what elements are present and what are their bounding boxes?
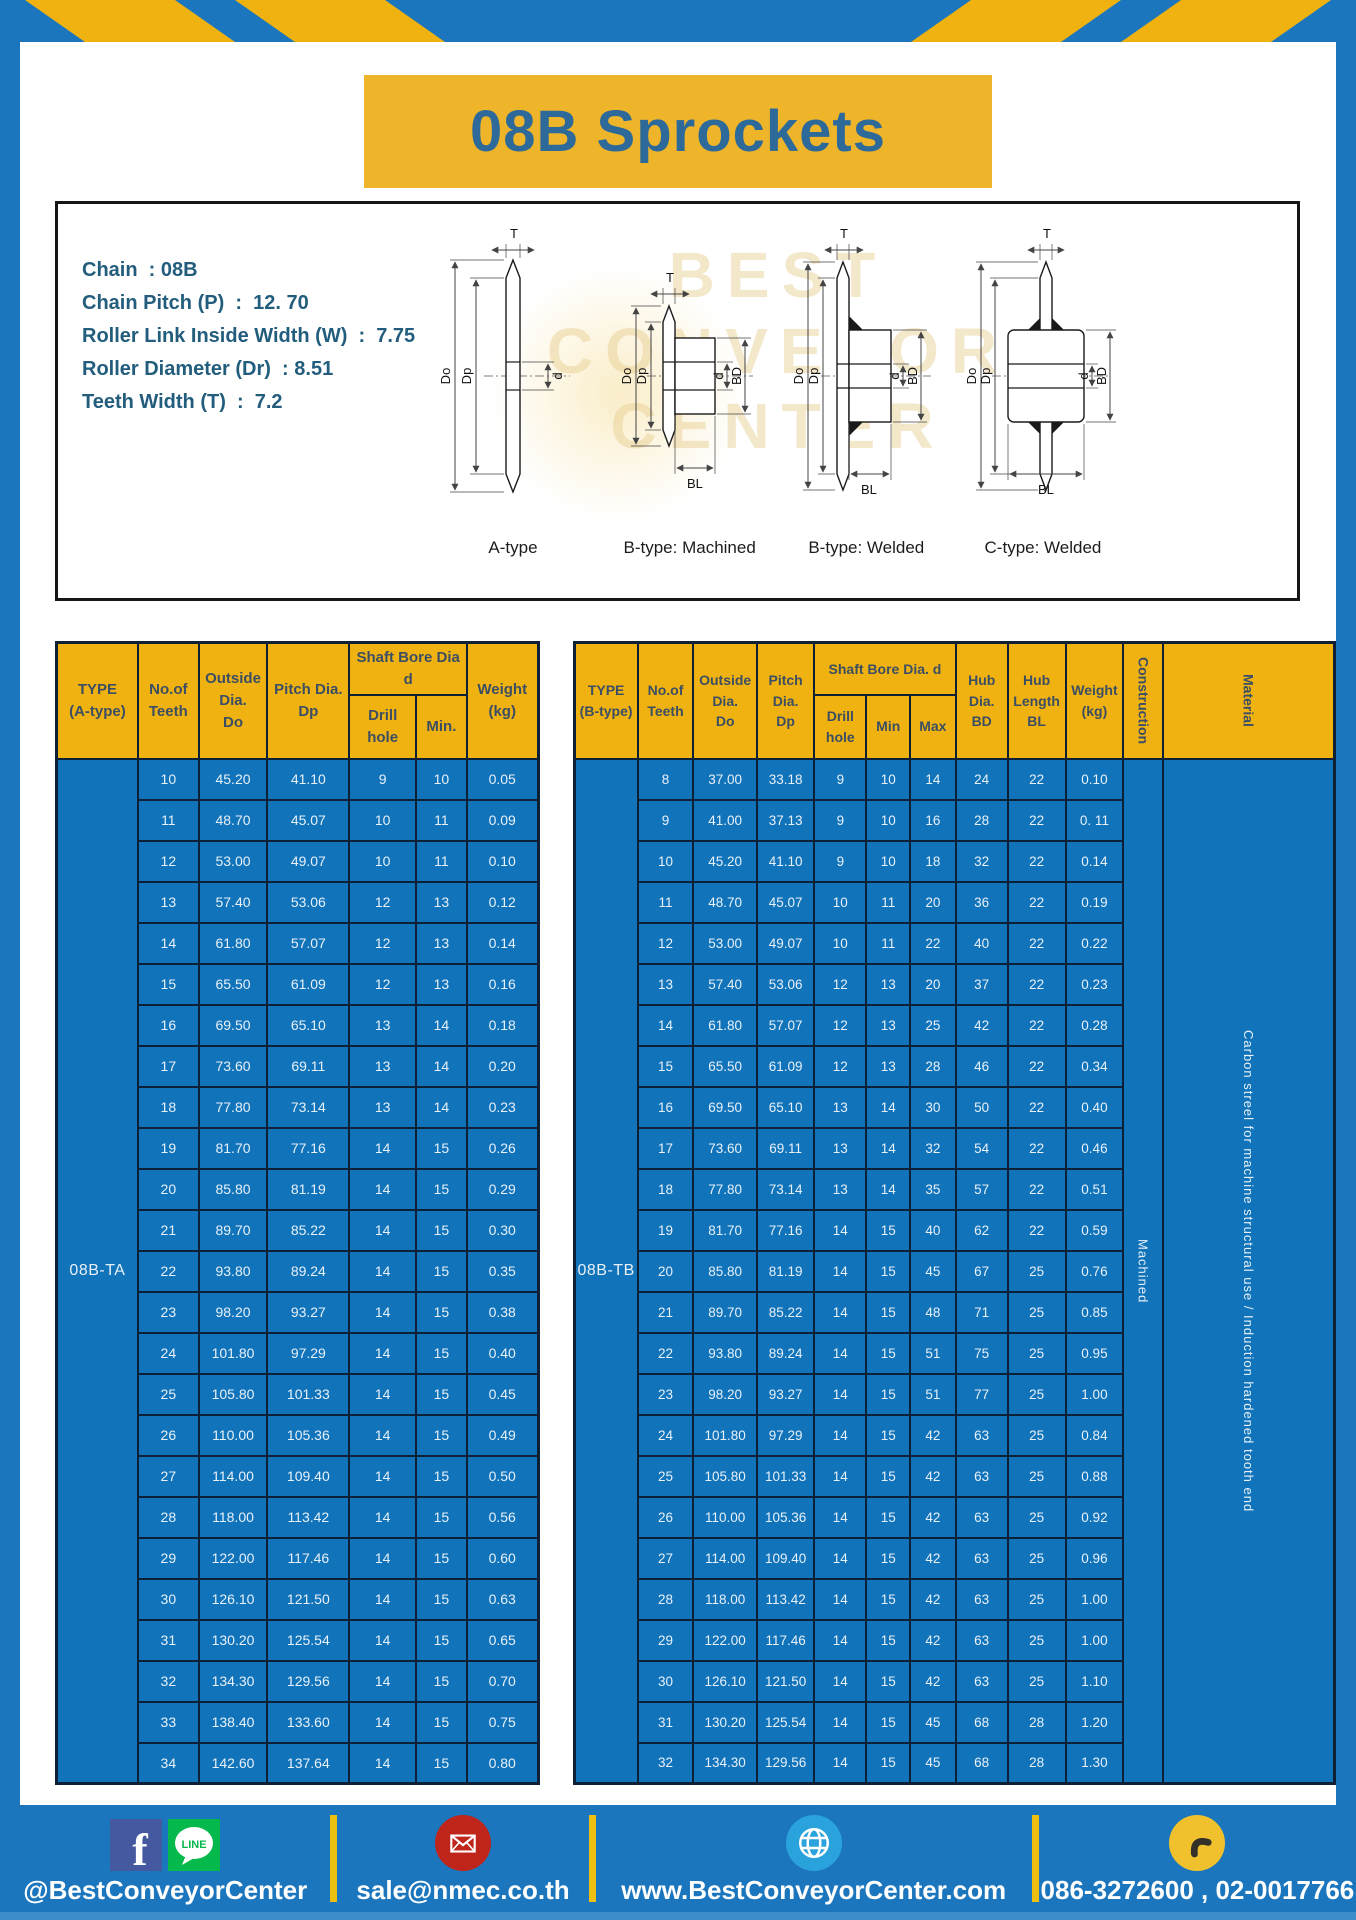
table-cell: 14 xyxy=(138,923,199,964)
col-header-shaft-bore: Shaft Bore Dia d xyxy=(349,643,466,695)
table-cell: 61.80 xyxy=(199,923,267,964)
table-cell: 37 xyxy=(956,964,1008,1005)
footer-social-handle: @BestConveyorCenter xyxy=(23,1875,307,1906)
spec-chain: Chain : 08B xyxy=(82,254,415,287)
table-cell: 25 xyxy=(1008,1374,1066,1415)
table-cell: 0.18 xyxy=(467,1005,538,1046)
table-cell: 10 xyxy=(814,882,866,923)
table-cell: 23 xyxy=(638,1374,694,1415)
table-cell: 13 xyxy=(416,882,467,923)
table-cell: 15 xyxy=(866,1579,910,1620)
table-cell: 37.13 xyxy=(757,800,814,841)
table-cell: 77.16 xyxy=(757,1210,814,1251)
table-cell: 45 xyxy=(910,1702,956,1743)
table-cell: 25 xyxy=(1008,1497,1066,1538)
table-cell: 19 xyxy=(638,1210,694,1251)
table-cell: 12 xyxy=(638,923,694,964)
table-cell: 81.70 xyxy=(693,1210,757,1251)
table-cell: 62 xyxy=(956,1210,1008,1251)
table-cell: 0.50 xyxy=(467,1456,538,1497)
table-cell: 0.40 xyxy=(467,1333,538,1374)
table-cell: 89.24 xyxy=(267,1251,349,1292)
table-cell: 10 xyxy=(866,841,910,882)
table-cell: 69.50 xyxy=(199,1005,267,1046)
table-cell: 42 xyxy=(910,1415,956,1456)
table-cell: 29 xyxy=(138,1538,199,1579)
a-type-table: TYPE (A-type) No.of Teeth Outside Dia. D… xyxy=(55,641,540,1785)
table-cell: 69.11 xyxy=(267,1046,349,1087)
table-cell: 0.23 xyxy=(467,1087,538,1128)
table-cell: 0.29 xyxy=(467,1169,538,1210)
col-header-outside-dia: Outside Dia. Do xyxy=(693,643,757,759)
table-cell: 118.00 xyxy=(693,1579,757,1620)
spec-roller-diameter: Roller Diameter (Dr) : 8.51 xyxy=(82,353,415,386)
table-cell: 14 xyxy=(349,1128,415,1169)
table-cell: 53.06 xyxy=(757,964,814,1005)
table-cell: 0.85 xyxy=(1066,1292,1124,1333)
table-cell: 101.33 xyxy=(267,1374,349,1415)
table-cell: 22 xyxy=(1008,1005,1066,1046)
dim-label: T xyxy=(840,226,848,241)
table-cell: 130.20 xyxy=(693,1702,757,1743)
table-cell: 13 xyxy=(349,1046,415,1087)
dim-label: Do xyxy=(964,368,979,385)
table-cell: 0.28 xyxy=(1066,1005,1124,1046)
table-cell: 81.70 xyxy=(199,1128,267,1169)
table-cell: 93.80 xyxy=(693,1333,757,1374)
table-cell: 22 xyxy=(1008,1169,1066,1210)
table-cell: 0.76 xyxy=(1066,1251,1124,1292)
table-cell: 109.40 xyxy=(757,1538,814,1579)
footer: f LINE @BestConveyorCenter xyxy=(0,1805,1356,1912)
table-cell: 69.11 xyxy=(757,1128,814,1169)
col-header-weight: Weight (kg) xyxy=(467,643,538,759)
table-cell: 85.22 xyxy=(267,1210,349,1251)
table-cell: 14 xyxy=(416,1087,467,1128)
table-cell: 12 xyxy=(814,1005,866,1046)
table-cell: 122.00 xyxy=(693,1620,757,1661)
table-cell: 49.07 xyxy=(757,923,814,964)
table-cell: 14 xyxy=(814,1292,866,1333)
table-cell: 16 xyxy=(138,1005,199,1046)
col-header-teeth: No.of Teeth xyxy=(138,643,199,759)
table-cell: 61.80 xyxy=(693,1005,757,1046)
table-cell: 57.07 xyxy=(757,1005,814,1046)
table-cell: 14 xyxy=(866,1128,910,1169)
dim-label: Do xyxy=(438,368,453,385)
table-cell: 33.18 xyxy=(757,759,814,800)
table-cell: 0.22 xyxy=(1066,923,1124,964)
table-cell: 16 xyxy=(910,800,956,841)
table-cell: 15 xyxy=(416,1538,467,1579)
table-cell: 15 xyxy=(416,1661,467,1702)
b-type-table: TYPE (B-type) No.of Teeth Outside Dia. D… xyxy=(573,641,1337,1785)
table-cell: 0.20 xyxy=(467,1046,538,1087)
table-cell: 42 xyxy=(910,1620,956,1661)
table-cell: 25 xyxy=(1008,1579,1066,1620)
table-cell: 0.56 xyxy=(467,1497,538,1538)
table-cell: 85.22 xyxy=(757,1292,814,1333)
table-cell: 25 xyxy=(1008,1620,1066,1661)
table-cell: 15 xyxy=(866,1333,910,1374)
globe-icon xyxy=(786,1815,842,1871)
table-cell: 0.51 xyxy=(1066,1169,1124,1210)
table-cell: 81.19 xyxy=(757,1251,814,1292)
table-cell: 14 xyxy=(349,1620,415,1661)
table-cell: 73.60 xyxy=(693,1128,757,1169)
table-cell: 14 xyxy=(814,1456,866,1497)
dim-label: d xyxy=(711,372,726,379)
table-cell: 9 xyxy=(349,759,415,800)
col-header-hub-length: Hub Length BL xyxy=(1008,643,1066,759)
table-cell: 32 xyxy=(956,841,1008,882)
table-cell: 14 xyxy=(814,1333,866,1374)
table-cell: 12 xyxy=(349,882,415,923)
table-cell: 22 xyxy=(138,1251,199,1292)
table-cell: 71 xyxy=(956,1292,1008,1333)
table-cell: 45.20 xyxy=(199,759,267,800)
top-decorative-band xyxy=(0,0,1356,42)
table-cell: 63 xyxy=(956,1661,1008,1702)
table-cell: 12 xyxy=(814,1046,866,1087)
table-cell: 65.10 xyxy=(757,1087,814,1128)
table-cell: 15 xyxy=(866,1538,910,1579)
table-cell: 14 xyxy=(349,1292,415,1333)
table-cell: 23 xyxy=(138,1292,199,1333)
table-cell: 113.42 xyxy=(757,1579,814,1620)
table-cell: 22 xyxy=(1008,800,1066,841)
table-cell: 13 xyxy=(349,1005,415,1046)
table-cell: 0.60 xyxy=(467,1538,538,1579)
table-cell: 14 xyxy=(866,1169,910,1210)
table-cell: 65.50 xyxy=(199,964,267,1005)
table-cell: 14 xyxy=(814,1620,866,1661)
col-header-min: Min xyxy=(866,695,910,759)
dim-label: BL xyxy=(687,476,703,491)
table-cell: 118.00 xyxy=(199,1497,267,1538)
table-cell: 1.10 xyxy=(1066,1661,1124,1702)
dim-label: d xyxy=(1076,372,1091,379)
table-cell: 81.19 xyxy=(267,1169,349,1210)
table-cell: 0.30 xyxy=(467,1210,538,1251)
table-cell: 12 xyxy=(349,964,415,1005)
table-cell: 85.80 xyxy=(693,1251,757,1292)
table-cell: 15 xyxy=(866,1497,910,1538)
table-cell: 45.20 xyxy=(693,841,757,882)
table-cell: 14 xyxy=(814,1538,866,1579)
dim-label: Dp xyxy=(459,368,474,385)
footer-social: f LINE @BestConveyorCenter xyxy=(0,1805,330,1912)
table-cell: 40 xyxy=(910,1210,956,1251)
table-cell: 15 xyxy=(866,1702,910,1743)
table-cell: 9 xyxy=(638,800,694,841)
col-header-type: TYPE (B-type) xyxy=(574,643,638,759)
table-cell: 126.10 xyxy=(693,1661,757,1702)
table-cell: 53.00 xyxy=(693,923,757,964)
table-cell: 121.50 xyxy=(757,1661,814,1702)
table-cell: 0.38 xyxy=(467,1292,538,1333)
table-cell: 57 xyxy=(956,1169,1008,1210)
table-cell: 0.75 xyxy=(467,1702,538,1743)
table-cell: 26 xyxy=(138,1415,199,1456)
table-cell: 110.00 xyxy=(199,1415,267,1456)
table-cell: 14 xyxy=(349,1456,415,1497)
table-cell: 36 xyxy=(956,882,1008,923)
table-cell: 21 xyxy=(638,1292,694,1333)
footer-email-address: sale@nmec.co.th xyxy=(356,1875,569,1906)
table-cell: 15 xyxy=(416,1620,467,1661)
table-cell: 73.14 xyxy=(267,1087,349,1128)
table-cell: 0.65 xyxy=(467,1620,538,1661)
table-cell: 63 xyxy=(956,1538,1008,1579)
table-cell: 18 xyxy=(910,841,956,882)
col-header-type: TYPE (A-type) xyxy=(57,643,138,759)
table-cell: 14 xyxy=(638,1005,694,1046)
table-cell: 114.00 xyxy=(693,1538,757,1579)
table-cell: 42 xyxy=(910,1661,956,1702)
table-cell: 42 xyxy=(956,1005,1008,1046)
footer-phone-numbers: 086-3272600 , 02-0017766 xyxy=(1041,1875,1355,1906)
table-cell: 109.40 xyxy=(267,1456,349,1497)
table-cell: 14 xyxy=(349,1497,415,1538)
dim-label: BD xyxy=(1094,367,1109,385)
table-cell: 25 xyxy=(1008,1661,1066,1702)
table-cell: 93.27 xyxy=(757,1374,814,1415)
table-cell: 97.29 xyxy=(267,1333,349,1374)
page-body: 08B Sprockets BEST CONVEYOR CENTER Chain… xyxy=(20,42,1336,1805)
table-cell: 13 xyxy=(866,964,910,1005)
dim-label: Dp xyxy=(806,368,821,385)
table-cell: 63 xyxy=(956,1579,1008,1620)
table-cell: 0.88 xyxy=(1066,1456,1124,1497)
chain-specs: Chain : 08B Chain Pitch (P) : 12. 70 Rol… xyxy=(82,254,415,419)
dim-label: T xyxy=(1043,226,1051,241)
table-cell: 97.29 xyxy=(757,1415,814,1456)
table-cell: 0.92 xyxy=(1066,1497,1124,1538)
table-cell: 14 xyxy=(349,1743,415,1784)
table-cell: 19 xyxy=(138,1128,199,1169)
table-cell: 15 xyxy=(866,1661,910,1702)
table-cell: 13 xyxy=(416,923,467,964)
table-cell: 31 xyxy=(138,1620,199,1661)
dim-label: T xyxy=(666,270,674,285)
a-type-diagram: T Do Dp d A-type xyxy=(428,218,598,558)
table-cell: 9 xyxy=(814,800,866,841)
footer-divider xyxy=(589,1815,596,1902)
table-cell: 0.10 xyxy=(1066,759,1124,800)
table-cell: 46 xyxy=(956,1046,1008,1087)
table-cell: 28 xyxy=(638,1579,694,1620)
table-cell: 77.80 xyxy=(693,1169,757,1210)
table-cell: 137.64 xyxy=(267,1743,349,1784)
table-cell: 15 xyxy=(866,1456,910,1497)
table-cell: 13 xyxy=(814,1087,866,1128)
table-cell: 25 xyxy=(638,1456,694,1497)
table-cell: 1.00 xyxy=(1066,1620,1124,1661)
yellow-stripe xyxy=(1112,0,1339,42)
table-cell: 45.07 xyxy=(757,882,814,923)
table-cell: 101.80 xyxy=(693,1415,757,1456)
table-cell: 15 xyxy=(416,1292,467,1333)
table-cell: 22 xyxy=(1008,964,1066,1005)
dim-label: BD xyxy=(905,367,920,385)
table-cell: 105.36 xyxy=(757,1497,814,1538)
table-cell: 61.09 xyxy=(757,1046,814,1087)
table-cell: 22 xyxy=(1008,1087,1066,1128)
table-cell: 77.16 xyxy=(267,1128,349,1169)
dim-label: BD xyxy=(729,367,744,385)
type-cell: 08B-TB xyxy=(574,759,638,1784)
table-cell: 61.09 xyxy=(267,964,349,1005)
table-cell: 34 xyxy=(138,1743,199,1784)
col-header-min: Min. xyxy=(416,695,467,759)
table-cell: 89.24 xyxy=(757,1333,814,1374)
diagram-caption: C-type: Welded xyxy=(985,538,1102,558)
b-type-machined-diagram: T Do Dp d BD BL B-type: xyxy=(605,218,775,558)
table-cell: 15 xyxy=(866,1374,910,1415)
dim-label: Dp xyxy=(634,368,649,385)
table-cell: 15 xyxy=(416,1374,467,1415)
table-cell: 14 xyxy=(349,1210,415,1251)
table-cell: 101.33 xyxy=(757,1456,814,1497)
table-cell: 14 xyxy=(814,1743,866,1784)
table-cell: 30 xyxy=(138,1579,199,1620)
table-cell: 40 xyxy=(956,923,1008,964)
table-cell: 29 xyxy=(638,1620,694,1661)
table-cell: 0.34 xyxy=(1066,1046,1124,1087)
table-cell: 15 xyxy=(866,1743,910,1784)
table-cell: 89.70 xyxy=(199,1210,267,1251)
table-cell: 22 xyxy=(1008,1210,1066,1251)
table-cell: 73.60 xyxy=(199,1046,267,1087)
table-cell: 14 xyxy=(349,1538,415,1579)
table-cell: 105.80 xyxy=(693,1456,757,1497)
col-header-outside-dia: Outside Dia. Do xyxy=(199,643,267,759)
bottom-strip xyxy=(0,1912,1356,1920)
table-cell: 22 xyxy=(1008,923,1066,964)
line-icon: LINE xyxy=(168,1819,220,1871)
table-cell: 0.59 xyxy=(1066,1210,1124,1251)
col-header-material: Material xyxy=(1163,643,1335,759)
table-cell: 129.56 xyxy=(267,1661,349,1702)
table-cell: 0.40 xyxy=(1066,1087,1124,1128)
table-cell: 32 xyxy=(638,1743,694,1784)
table-cell: 18 xyxy=(138,1087,199,1128)
col-header-pitch-dia: Pitch Dia. Dp xyxy=(267,643,349,759)
table-cell: 15 xyxy=(416,1251,467,1292)
table-cell: 125.54 xyxy=(267,1620,349,1661)
table-cell: 117.46 xyxy=(757,1620,814,1661)
table-cell: 13 xyxy=(349,1087,415,1128)
table-cell: 14 xyxy=(814,1415,866,1456)
table-cell: 30 xyxy=(638,1661,694,1702)
table-cell: 51 xyxy=(910,1374,956,1415)
table-cell: 15 xyxy=(416,1579,467,1620)
table-row: 08B-TB837.0033.189101424220.10MachinedCa… xyxy=(574,759,1335,800)
table-cell: 14 xyxy=(349,1333,415,1374)
table-cell: 15 xyxy=(638,1046,694,1087)
table-cell: 10 xyxy=(638,841,694,882)
table-cell: 15 xyxy=(866,1292,910,1333)
table-cell: 0.05 xyxy=(467,759,538,800)
table-cell: 114.00 xyxy=(199,1456,267,1497)
table-cell: 133.60 xyxy=(267,1702,349,1743)
table-cell: 25 xyxy=(1008,1292,1066,1333)
table-cell: 1.00 xyxy=(1066,1374,1124,1415)
table-cell: 0.26 xyxy=(467,1128,538,1169)
table-cell: 9 xyxy=(814,759,866,800)
col-header-drill-hole: Drill hole xyxy=(349,695,415,759)
table-cell: 14 xyxy=(349,1251,415,1292)
spec-roller-link-width: Roller Link Inside Width (W) : 7.75 xyxy=(82,320,415,353)
table-cell: 15 xyxy=(866,1210,910,1251)
table-cell: 24 xyxy=(138,1333,199,1374)
table-cell: 11 xyxy=(866,882,910,923)
table-cell: 10 xyxy=(138,759,199,800)
dim-label: d xyxy=(887,372,902,379)
table-cell: 25 xyxy=(138,1374,199,1415)
construction-cell: Machined xyxy=(1123,759,1163,1784)
col-header-teeth: No.of Teeth xyxy=(638,643,694,759)
col-header-drill-hole: Drill hole xyxy=(814,695,866,759)
table-cell: 0.46 xyxy=(1066,1128,1124,1169)
table-cell: 105.80 xyxy=(199,1374,267,1415)
table-cell: 25 xyxy=(1008,1333,1066,1374)
facebook-icon: f xyxy=(110,1819,162,1871)
table-cell: 15 xyxy=(138,964,199,1005)
table-cell: 63 xyxy=(956,1620,1008,1661)
table-cell: 28 xyxy=(956,800,1008,841)
table-cell: 68 xyxy=(956,1743,1008,1784)
dim-label: BL xyxy=(1038,482,1054,497)
table-cell: 14 xyxy=(814,1210,866,1251)
footer-phone: 086-3272600 , 02-0017766 xyxy=(1039,1805,1356,1912)
footer-divider xyxy=(330,1815,337,1902)
table-cell: 13 xyxy=(814,1169,866,1210)
col-header-shaft-bore: Shaft Bore Dia. d xyxy=(814,643,956,695)
table-cell: 14 xyxy=(416,1046,467,1087)
table-cell: 0. 11 xyxy=(1066,800,1124,841)
table-cell: 15 xyxy=(416,1456,467,1497)
table-cell: 0.23 xyxy=(1066,964,1124,1005)
table-cell: 110.00 xyxy=(693,1497,757,1538)
footer-email: sale@nmec.co.th xyxy=(337,1805,588,1912)
table-cell: 10 xyxy=(349,800,415,841)
table-cell: 77.80 xyxy=(199,1087,267,1128)
yellow-stripe xyxy=(902,0,1129,42)
table-cell: 45 xyxy=(910,1743,956,1784)
table-cell: 12 xyxy=(349,923,415,964)
table-cell: 53.00 xyxy=(199,841,267,882)
table-cell: 134.30 xyxy=(199,1661,267,1702)
table-cell: 11 xyxy=(416,800,467,841)
table-cell: 31 xyxy=(638,1702,694,1743)
table-cell: 48.70 xyxy=(199,800,267,841)
table-cell: 0.96 xyxy=(1066,1538,1124,1579)
table-cell: 98.20 xyxy=(199,1292,267,1333)
table-cell: 14 xyxy=(349,1374,415,1415)
dim-label: d xyxy=(550,372,565,379)
table-cell: 15 xyxy=(416,1702,467,1743)
table-cell: 10 xyxy=(866,800,910,841)
material-cell: Carbon streel for machine structural use… xyxy=(1163,759,1335,1784)
diagram-caption: B-type: Welded xyxy=(808,538,924,558)
table-cell: 14 xyxy=(814,1661,866,1702)
table-cell: 125.54 xyxy=(757,1702,814,1743)
table-cell: 126.10 xyxy=(199,1579,267,1620)
table-cell: 28 xyxy=(1008,1702,1066,1743)
table-cell: 0.12 xyxy=(467,882,538,923)
